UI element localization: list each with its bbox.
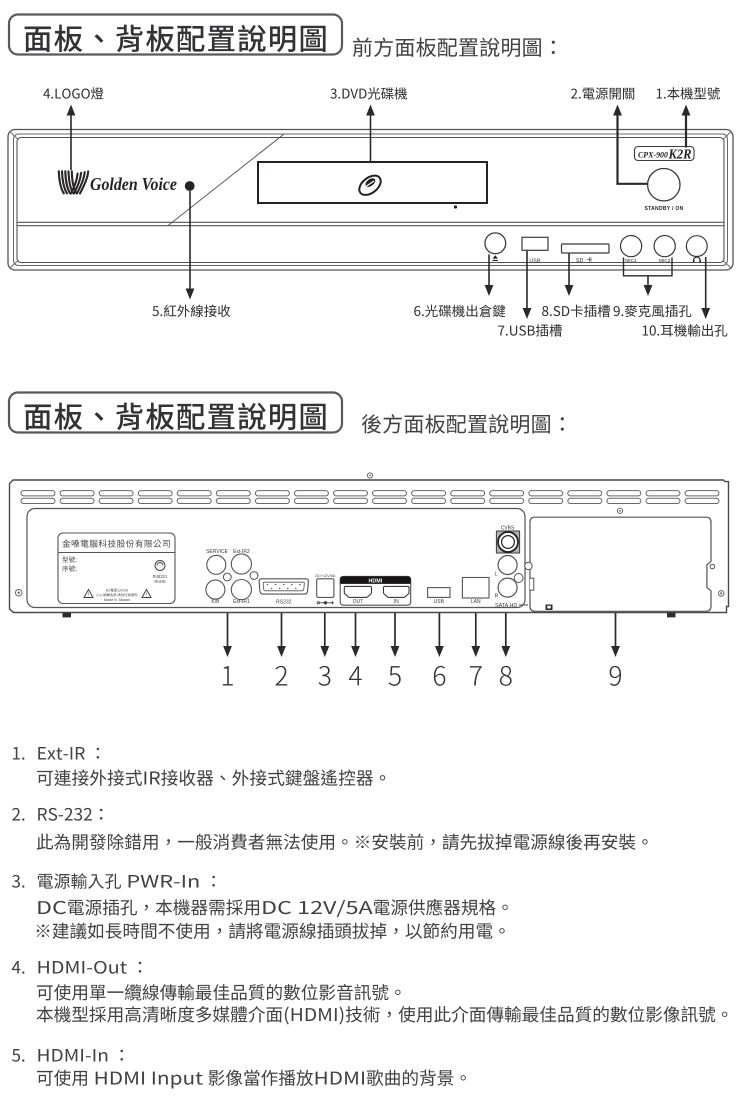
svg-text:K/B: K/B (211, 599, 220, 605)
svg-text:MIC1: MIC1 (625, 258, 637, 264)
svg-text:USB: USB (434, 599, 445, 605)
svg-text:USB: USB (529, 259, 541, 265)
svg-text:R: R (495, 594, 499, 600)
svg-text:IN: IN (394, 599, 399, 605)
svg-text:Made in Taiwan: Made in Taiwan (104, 598, 130, 602)
svg-text:MIC2: MIC2 (659, 258, 671, 264)
svg-text:RoHS: RoHS (154, 579, 165, 584)
svg-text:CPX-900: CPX-900 (638, 149, 669, 159)
svg-text:K2R: K2R (668, 146, 692, 161)
svg-text:!: ! (146, 593, 147, 599)
svg-text:DC+12V/5A: DC+12V/5A (315, 574, 336, 578)
svg-text:Ext-IR1: Ext-IR1 (233, 599, 250, 605)
svg-text:STANDBY / ON: STANDBY / ON (645, 206, 684, 212)
svg-text:L: L (495, 572, 498, 578)
svg-text:OUT: OUT (353, 599, 364, 605)
svg-text:SATA HD: SATA HD (495, 603, 517, 609)
svg-text:!: ! (88, 593, 89, 599)
svg-text:Golden Voice: Golden Voice (90, 174, 177, 194)
svg-text:SERVICE: SERVICE (206, 549, 229, 555)
svg-text:SD: SD (576, 258, 584, 264)
svg-text:HDMI: HDMI (369, 579, 383, 585)
svg-text:RS232: RS232 (276, 600, 292, 606)
svg-text:LAN: LAN (471, 599, 481, 605)
